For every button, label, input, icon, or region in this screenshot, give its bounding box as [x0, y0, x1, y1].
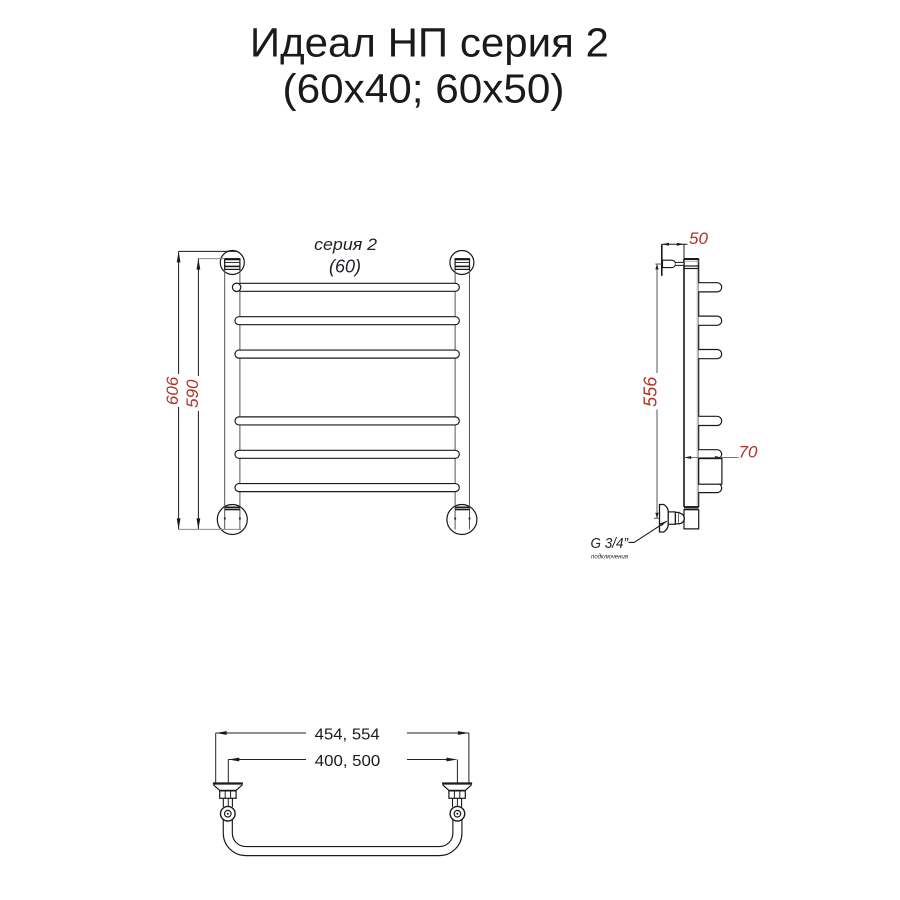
svg-text:подключения: подключения [591, 553, 628, 561]
svg-text:454, 554: 454, 554 [315, 727, 380, 744]
svg-text:(60x40; 60x50): (60x40; 60x50) [283, 66, 565, 112]
svg-text:(60): (60) [329, 257, 361, 277]
svg-text:Идеал НП серия 2: Идеал НП серия 2 [250, 20, 609, 66]
svg-text:400, 500: 400, 500 [315, 753, 381, 770]
svg-text:серия 2: серия 2 [314, 235, 378, 254]
svg-text:50: 50 [689, 229, 708, 248]
svg-text:556: 556 [640, 376, 660, 407]
svg-text:606: 606 [163, 376, 182, 405]
svg-text:590: 590 [183, 379, 202, 408]
svg-text:70: 70 [739, 443, 758, 462]
svg-text:G 3/4”: G 3/4” [591, 535, 629, 552]
